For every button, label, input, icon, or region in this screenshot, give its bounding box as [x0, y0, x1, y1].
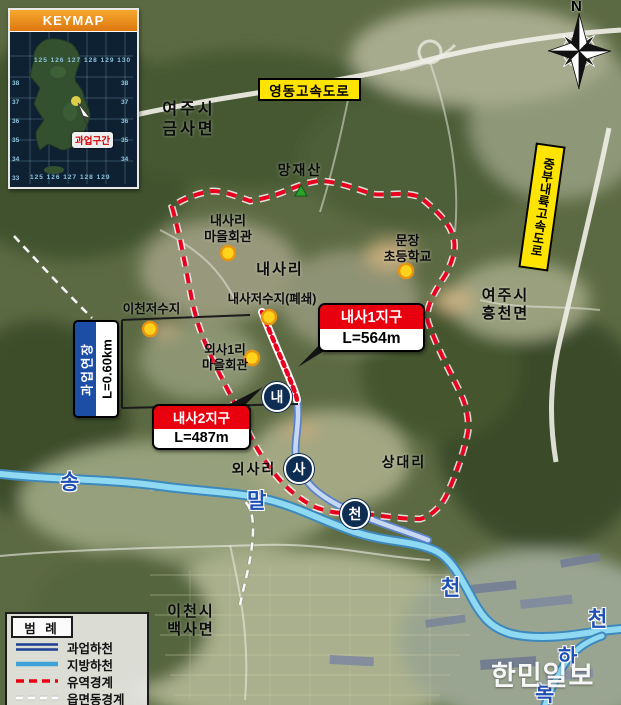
keymap-inset: KEYMAP 125 126 127 128 129 130 38 37 36 …: [8, 8, 139, 189]
place-label-naesa-reservoir: 내사저수지(폐쇄): [222, 292, 322, 307]
single-blue-line-icon: [13, 657, 61, 671]
place-label-mangjaesan: 망재산: [270, 162, 330, 179]
river-label-cheon-east: 천: [588, 603, 607, 633]
naesa1-district-length: L=564m: [320, 329, 423, 350]
newspaper-watermark: 한민일보: [491, 654, 594, 693]
legend: 범 례 과업하천 지방하천 유역경계 읍면동경계: [5, 612, 149, 705]
place-label-sangdaeri: 상대리: [378, 454, 430, 471]
keymap-title: KEYMAP: [10, 10, 137, 32]
place-label-icheon-reservoir: 이천저수지: [114, 302, 189, 317]
yeongdong-expressway-label: 영동고속도로: [258, 78, 361, 101]
naesa2-district-length: L=487m: [154, 429, 249, 448]
keymap-map-area: 125 126 127 128 129 130 38 37 36 35 34 3…: [10, 32, 133, 184]
project-extension-callout: 과업연장 L=0.60km: [73, 320, 119, 418]
red-dashed-line-icon: [13, 674, 61, 688]
korea-minimap: [10, 32, 133, 184]
keymap-coords-bottom: 125 126 127 128 129: [30, 175, 110, 182]
place-label-yeoju-geumsa: 여주시 금사면: [150, 100, 228, 139]
keymap-coords-right: 38 37 36 35 34: [121, 74, 128, 169]
river-badge-sa: 사: [284, 454, 314, 484]
place-label-yeoju-heungcheon: 여주시 흥천면: [473, 287, 538, 324]
place-label-munjang-school: 문장 초등학교: [375, 233, 440, 265]
legend-item-project-river: 과업하천: [13, 639, 141, 655]
project-extension-length: L=0.60km: [99, 339, 114, 399]
river-label-song: 송: [60, 466, 79, 496]
place-label-oesa1ri-hall: 외사1리 마을회관: [195, 343, 255, 374]
naesa1-district-callout: 내사1지구 L=564m: [318, 303, 425, 352]
project-extension-title: 과업연장: [76, 342, 95, 396]
map-canvas: N 영동고속도로 중부내륙고속도로 내사1지구 L=564m 내사2지구 L=4…: [0, 0, 621, 705]
keymap-project-section-badge: 과업구간: [72, 132, 113, 148]
naesa2-district-title: 내사2지구: [154, 406, 249, 429]
river-badge-nae: 내: [262, 382, 292, 412]
river-label-cheon-west: 천: [441, 572, 460, 602]
naesa2-district-callout: 내사2지구 L=487m: [152, 404, 251, 450]
keymap-coords-top: 125 126 127 128 129 130: [34, 58, 131, 65]
river-label-mal: 말: [247, 485, 266, 515]
legend-item-local-river: 지방하천: [13, 656, 141, 672]
legend-item-watershed-boundary: 유역경계: [13, 673, 141, 689]
place-label-naesari: 내사리: [254, 261, 306, 279]
legend-label: 읍면동경계: [67, 689, 125, 705]
legend-title: 범 례: [11, 616, 73, 638]
white-dashed-line-icon: [13, 691, 61, 705]
keymap-coords-left: 38 37 36 35 34 33: [12, 74, 19, 188]
project-extension-length-cell: L=0.60km: [96, 322, 117, 416]
place-label-oesari: 외사리: [228, 461, 280, 478]
naesa1-district-title: 내사1지구: [320, 305, 423, 329]
place-label-icheon-baeksa: 이천시 백사면: [160, 603, 222, 640]
place-label-naesari-hall: 내사리 마을회관: [193, 213, 263, 245]
river-badge-cheon: 천: [340, 499, 370, 529]
legend-item-township-boundary: 읍면동경계: [13, 690, 141, 705]
compass-north-label: N: [571, 0, 582, 15]
project-extension-title-cell: 과업연장: [75, 322, 96, 416]
double-navy-line-icon: [13, 640, 61, 654]
